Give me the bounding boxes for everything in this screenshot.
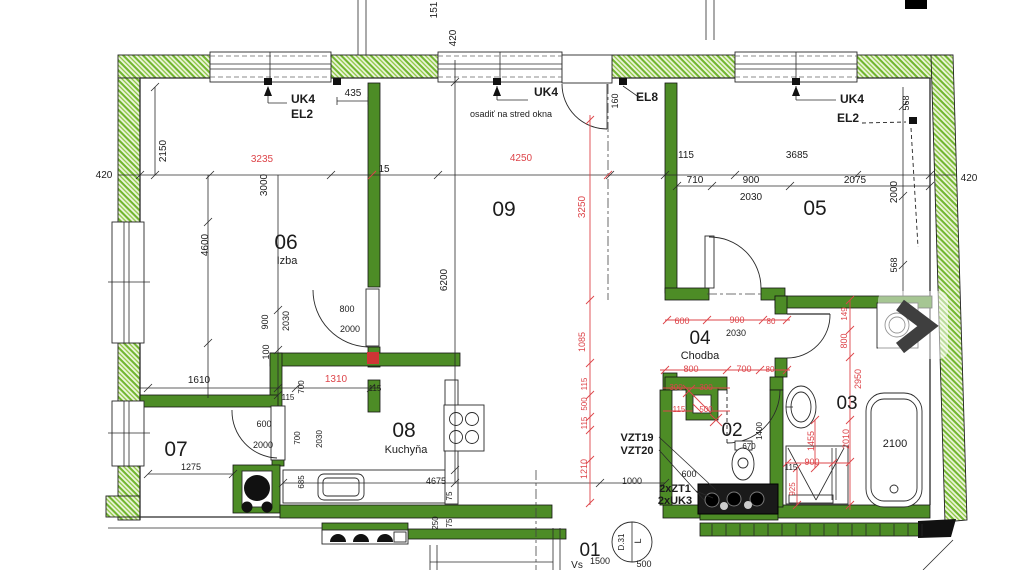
dim-3235: 3235 xyxy=(251,154,274,165)
dim-500-b: 500 xyxy=(636,559,651,569)
dim-300-a: 300 xyxy=(669,383,683,392)
annotation-vzt20: VZT20 xyxy=(620,445,653,457)
fixtures xyxy=(242,0,957,562)
chevron-right-icon xyxy=(886,297,940,353)
dim-700-a: 700 xyxy=(297,380,306,394)
fitting-marker xyxy=(333,78,341,85)
dim-300-b: 300 xyxy=(699,383,713,392)
floor-plan: 151420UK4EL2435UK4osadiť na stred okna16… xyxy=(0,0,1011,570)
dim-2075: 2075 xyxy=(844,175,867,186)
red-corner-mark xyxy=(367,352,379,364)
dim-2030-07: 2030 xyxy=(315,430,324,448)
dim-435: 435 xyxy=(345,88,362,99)
dim-1275: 1275 xyxy=(181,462,201,472)
dim-600-red: 600 xyxy=(674,316,689,326)
room-number-07: 07 xyxy=(164,438,187,461)
fitting-marker xyxy=(493,78,501,85)
dim-685: 685 xyxy=(297,475,306,489)
dim-800-red: 800 xyxy=(683,364,698,374)
dim-3250: 3250 xyxy=(577,195,588,218)
dim-1000: 1000 xyxy=(622,476,642,486)
toilet xyxy=(732,448,754,480)
room-name-chodba: Chodba xyxy=(681,350,720,362)
room-number-06: 06 xyxy=(274,231,297,254)
room-number-03: 03 xyxy=(836,393,857,414)
door-arc-05 xyxy=(709,237,761,288)
dim-420-right: 420 xyxy=(961,173,978,184)
dim-80-a: 80 xyxy=(767,317,776,326)
dim-2030-06: 2030 xyxy=(281,311,291,331)
dim-500-red-a: 500 xyxy=(580,397,589,411)
dim-900-shower: 900 xyxy=(804,457,819,467)
stove xyxy=(444,405,484,451)
dim-900-red: 900 xyxy=(729,315,744,325)
dim-250: 250 xyxy=(431,516,440,530)
kitchen-counter xyxy=(283,470,455,503)
annotation-note: osadiť na stred okna xyxy=(470,109,552,119)
dim-420-left: 420 xyxy=(96,170,113,181)
annotation-el2-left: EL2 xyxy=(291,107,313,121)
dim-115-a: 115 xyxy=(678,150,694,161)
dim-4600: 4600 xyxy=(200,233,211,256)
dim-420-top: 420 xyxy=(448,29,459,46)
dim-1610: 1610 xyxy=(188,375,211,386)
annotation-vzt19: VZT19 xyxy=(620,432,653,444)
dim-925: 925 xyxy=(788,482,797,496)
room-number-02: 02 xyxy=(721,420,742,441)
dim-800-red-v: 800 xyxy=(839,333,849,348)
dim-2030-05: 2030 xyxy=(740,192,763,203)
annotation-el2-right: EL2 xyxy=(837,111,859,125)
floor-plan-drawing: 151420UK4EL2435UK4osadiť na stred okna16… xyxy=(0,0,1011,570)
dim-900-05: 900 xyxy=(743,175,760,186)
dim-700-b: 700 xyxy=(293,431,302,445)
door-arc-07 xyxy=(232,410,277,458)
dim-160: 160 xyxy=(610,93,620,108)
annotation-uk4-mid: UK4 xyxy=(534,85,558,99)
fitting-marker xyxy=(792,78,800,85)
dim-115-c: 115 xyxy=(369,384,382,393)
balcony-door-opening xyxy=(562,55,612,83)
dim-2150: 2150 xyxy=(158,139,169,162)
dim-2000-right: 2000 xyxy=(889,180,900,203)
dim-700-red: 700 xyxy=(736,364,751,374)
dim-600-door07: 600 xyxy=(256,419,271,429)
next-image-button[interactable] xyxy=(878,291,948,359)
dim-1400: 1400 xyxy=(755,422,764,440)
door-leaf-07 xyxy=(271,406,285,460)
dim-3685: 3685 xyxy=(786,150,809,161)
room-name-izba: Izba xyxy=(277,255,299,267)
door-leaf-06 xyxy=(366,289,379,346)
dim-568-top: 568 xyxy=(901,95,911,110)
dim-710: 710 xyxy=(687,175,704,186)
dim-75-b: 75 xyxy=(445,518,454,527)
door-arc-el8 xyxy=(562,84,607,129)
shaft-pipe xyxy=(244,475,270,501)
dim-500-red-b: 500 xyxy=(699,405,713,414)
fitting-marker xyxy=(909,117,917,124)
annotation-uk4-right: UK4 xyxy=(840,92,864,106)
door-leaf-05 xyxy=(705,236,714,288)
logo-fragment xyxy=(905,0,927,9)
dim-1500: 1500 xyxy=(590,556,610,566)
annotation-uk4-left: UK4 xyxy=(291,92,315,106)
dim-2100-tub: 2100 xyxy=(883,438,907,450)
dim-100: 100 xyxy=(261,344,271,359)
room-number-05: 05 xyxy=(803,197,826,220)
dim-4250: 4250 xyxy=(510,153,533,164)
dim-15: 15 xyxy=(378,164,390,175)
annotation-2xuk3: 2xUK3 xyxy=(658,495,692,507)
dim-80-b: 80 xyxy=(766,365,775,374)
fitting-marker xyxy=(619,78,627,85)
room-number-08: 08 xyxy=(392,419,415,442)
stair-fragment xyxy=(918,519,956,538)
door-arc-06 xyxy=(313,290,368,347)
dim-115-red-a: 115 xyxy=(580,377,589,390)
dim-800-door06: 800 xyxy=(339,304,354,314)
dim-115-d: 115 xyxy=(785,463,798,472)
dim-900-06: 900 xyxy=(260,314,270,329)
door-tag-l: L xyxy=(633,538,643,543)
door-arc-03 xyxy=(787,314,830,358)
dim-2000-door07: 2000 xyxy=(253,440,273,450)
doors xyxy=(232,84,830,460)
room-number-04: 04 xyxy=(689,328,711,349)
dim-1310: 1310 xyxy=(325,374,348,385)
dim-3000: 3000 xyxy=(259,173,270,196)
dim-75-a: 75 xyxy=(445,491,454,500)
dim-1085: 1085 xyxy=(577,332,587,352)
dim-115-red-b: 115 xyxy=(580,416,589,429)
dim-4675: 4675 xyxy=(426,476,446,486)
room-name-01-partial: Vs xyxy=(571,560,583,570)
door-tag-d31: D.31 xyxy=(617,533,626,550)
dim-1210: 1210 xyxy=(579,459,589,479)
dim-600-b: 600 xyxy=(681,469,696,479)
dim-6200: 6200 xyxy=(439,268,450,291)
dim-115-red-c: 115 xyxy=(673,405,686,414)
annotation-el8: EL8 xyxy=(636,90,658,104)
dim-568-low: 568 xyxy=(889,257,899,272)
annotation-2xzt1: 2xZT1 xyxy=(659,483,691,495)
room-number-09: 09 xyxy=(492,198,515,221)
dim-151: 151 xyxy=(429,1,440,18)
dim-670: 670 xyxy=(742,442,756,451)
dim-2010: 2010 xyxy=(841,429,851,449)
dim-115-b: 115 xyxy=(282,393,295,402)
dim-149: 149 xyxy=(840,307,849,321)
bathtub xyxy=(866,393,922,507)
dim-1455: 1455 xyxy=(806,431,816,451)
fitting-marker xyxy=(264,78,272,85)
dim-2950: 2950 xyxy=(853,369,863,389)
dim-2030-04: 2030 xyxy=(726,328,746,338)
room-name-kuchyna: Kuchyňa xyxy=(385,444,429,456)
dim-2000-door06: 2000 xyxy=(340,324,360,334)
